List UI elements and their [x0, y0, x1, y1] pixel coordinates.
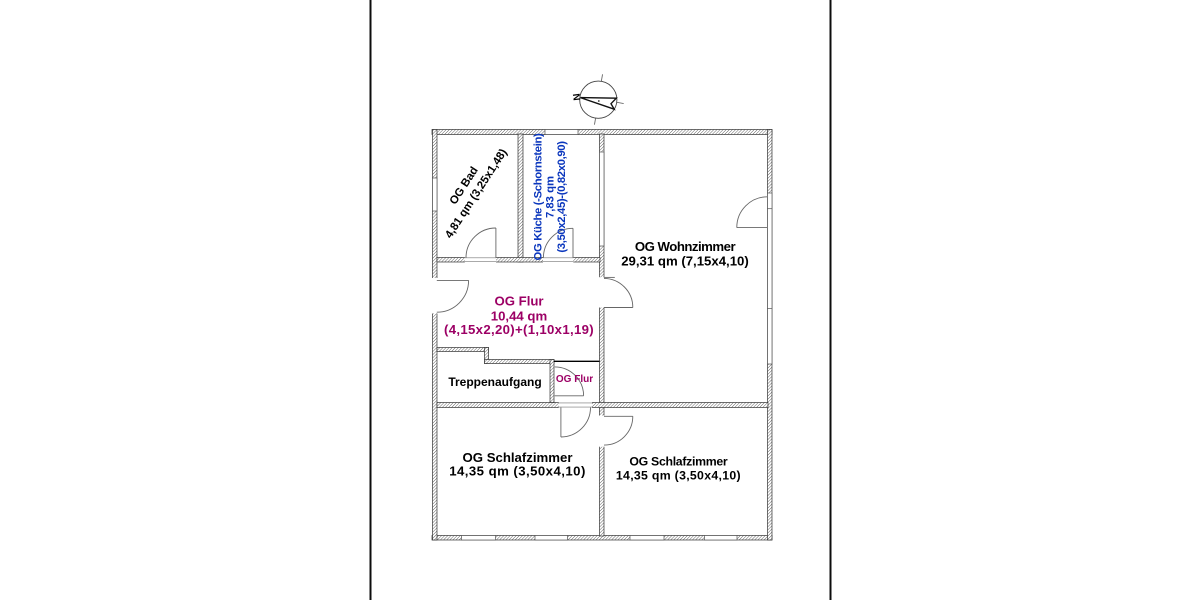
svg-text:OG Flur: OG Flur: [494, 294, 543, 309]
svg-text:(3,50x2,45)-(0,82x0,90): (3,50x2,45)-(0,82x0,90): [556, 141, 568, 253]
svg-text:14,35 qm (3,50x4,10): 14,35 qm (3,50x4,10): [449, 464, 586, 479]
svg-text:(4,15x2,20)+(1,10x1,19): (4,15x2,20)+(1,10x1,19): [444, 322, 594, 337]
svg-text:OG Wohnzimmer: OG Wohnzimmer: [635, 239, 736, 254]
svg-text:Treppenaufgang: Treppenaufgang: [448, 375, 541, 389]
svg-text:7,83 qm: 7,83 qm: [545, 176, 557, 218]
svg-text:OG Schlafzimmer: OG Schlafzimmer: [629, 454, 728, 468]
svg-text:OG Flur: OG Flur: [556, 374, 593, 385]
svg-text:29,31 qm (7,15x4,10): 29,31 qm (7,15x4,10): [621, 253, 749, 268]
svg-text:N: N: [572, 93, 584, 101]
svg-text:OG Küche (-Schornstein): OG Küche (-Schornstein): [532, 133, 544, 260]
svg-text:14,35 qm (3,50x4,10): 14,35 qm (3,50x4,10): [616, 469, 741, 483]
